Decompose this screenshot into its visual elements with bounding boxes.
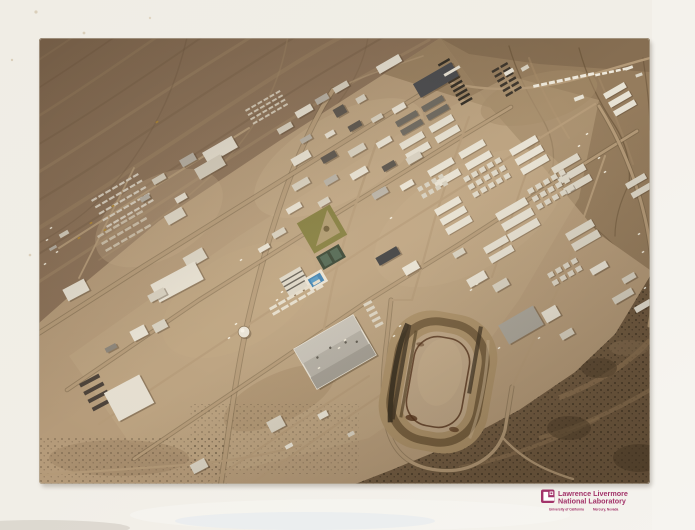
llnl-sub-right: Mercury, Nevada (593, 508, 619, 512)
paper-sheen-blue (175, 512, 435, 530)
center-highlight (39, 38, 650, 484)
photographed-print: Lawrence Livermore National Laboratory U… (0, 0, 695, 530)
llnl-sub-left: University of California (549, 508, 584, 512)
aerial-photo (29, 2, 665, 484)
scene-svg: Lawrence Livermore National Laboratory U… (0, 0, 695, 530)
paper-sheen-right (652, 0, 695, 530)
llnl-name-line2: National Laboratory (558, 497, 626, 506)
llnl-logo (541, 490, 555, 504)
